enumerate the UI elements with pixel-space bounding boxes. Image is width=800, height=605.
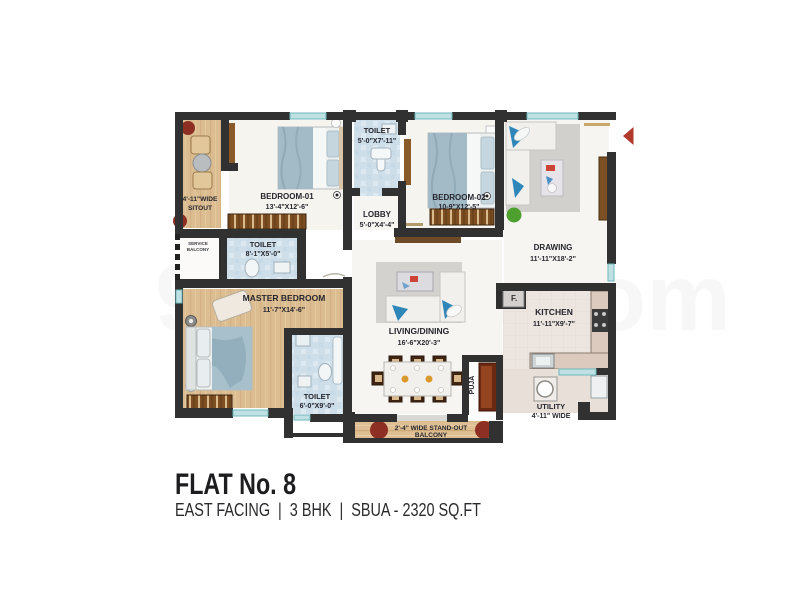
svg-text:PUJA: PUJA: [469, 376, 476, 395]
svg-text:4'-11" WIDE: 4'-11" WIDE: [532, 413, 571, 420]
svg-text:BEDROOM-02: BEDROOM-02: [432, 193, 486, 202]
svg-text:TOILET: TOILET: [250, 240, 277, 249]
svg-text:BEDROOM-01: BEDROOM-01: [260, 192, 314, 201]
svg-text:KITCHEN: KITCHEN: [535, 307, 573, 317]
svg-text:6'-0"X9'-0": 6'-0"X9'-0": [300, 403, 335, 410]
svg-text:FLAT No. 8: FLAT No. 8: [175, 468, 296, 501]
svg-text:4'-11"WIDE: 4'-11"WIDE: [183, 196, 218, 203]
svg-text:8'-1"X5'-0": 8'-1"X5'-0": [246, 251, 281, 258]
svg-text:16'-6"X20'-3": 16'-6"X20'-3": [398, 340, 441, 347]
svg-text:UTILITY: UTILITY: [537, 402, 565, 411]
svg-text:5'-0"X4'-4": 5'-0"X4'-4": [360, 222, 395, 229]
svg-text:LOBBY: LOBBY: [363, 210, 392, 219]
svg-text:SERVICE: SERVICE: [188, 241, 208, 246]
svg-text:11'-11"X18'-2": 11'-11"X18'-2": [530, 256, 576, 263]
svg-text:BALCONY: BALCONY: [187, 247, 209, 252]
svg-text:2'-4" WIDE STAND-OUT: 2'-4" WIDE STAND-OUT: [395, 425, 467, 432]
svg-text:10-9"X12'-5": 10-9"X12'-5": [439, 204, 480, 211]
svg-text:5'-0"X7'-11": 5'-0"X7'-11": [358, 138, 396, 145]
svg-text:DRAWING: DRAWING: [534, 243, 573, 252]
svg-text:13'-4"X12'-6": 13'-4"X12'-6": [266, 204, 309, 211]
svg-text:BALCONY: BALCONY: [415, 432, 448, 439]
svg-text:SITOUT: SITOUT: [188, 205, 212, 212]
svg-text:LIVING/DINING: LIVING/DINING: [389, 326, 450, 336]
svg-text:TOILET: TOILET: [304, 392, 331, 401]
svg-text:MASTER BEDROOM: MASTER BEDROOM: [243, 293, 326, 303]
svg-text:EAST FACING | 3 BHK | SBUA: EAST FACING | 3 BHK | SBUA - 2320 SQ.FT: [175, 499, 481, 520]
svg-text:11'-11"X9'-7": 11'-11"X9'-7": [533, 321, 575, 328]
svg-text:11'-7"X14'-6": 11'-7"X14'-6": [263, 307, 305, 314]
svg-text:F.: F.: [511, 294, 517, 303]
svg-text:TOILET: TOILET: [364, 126, 391, 135]
